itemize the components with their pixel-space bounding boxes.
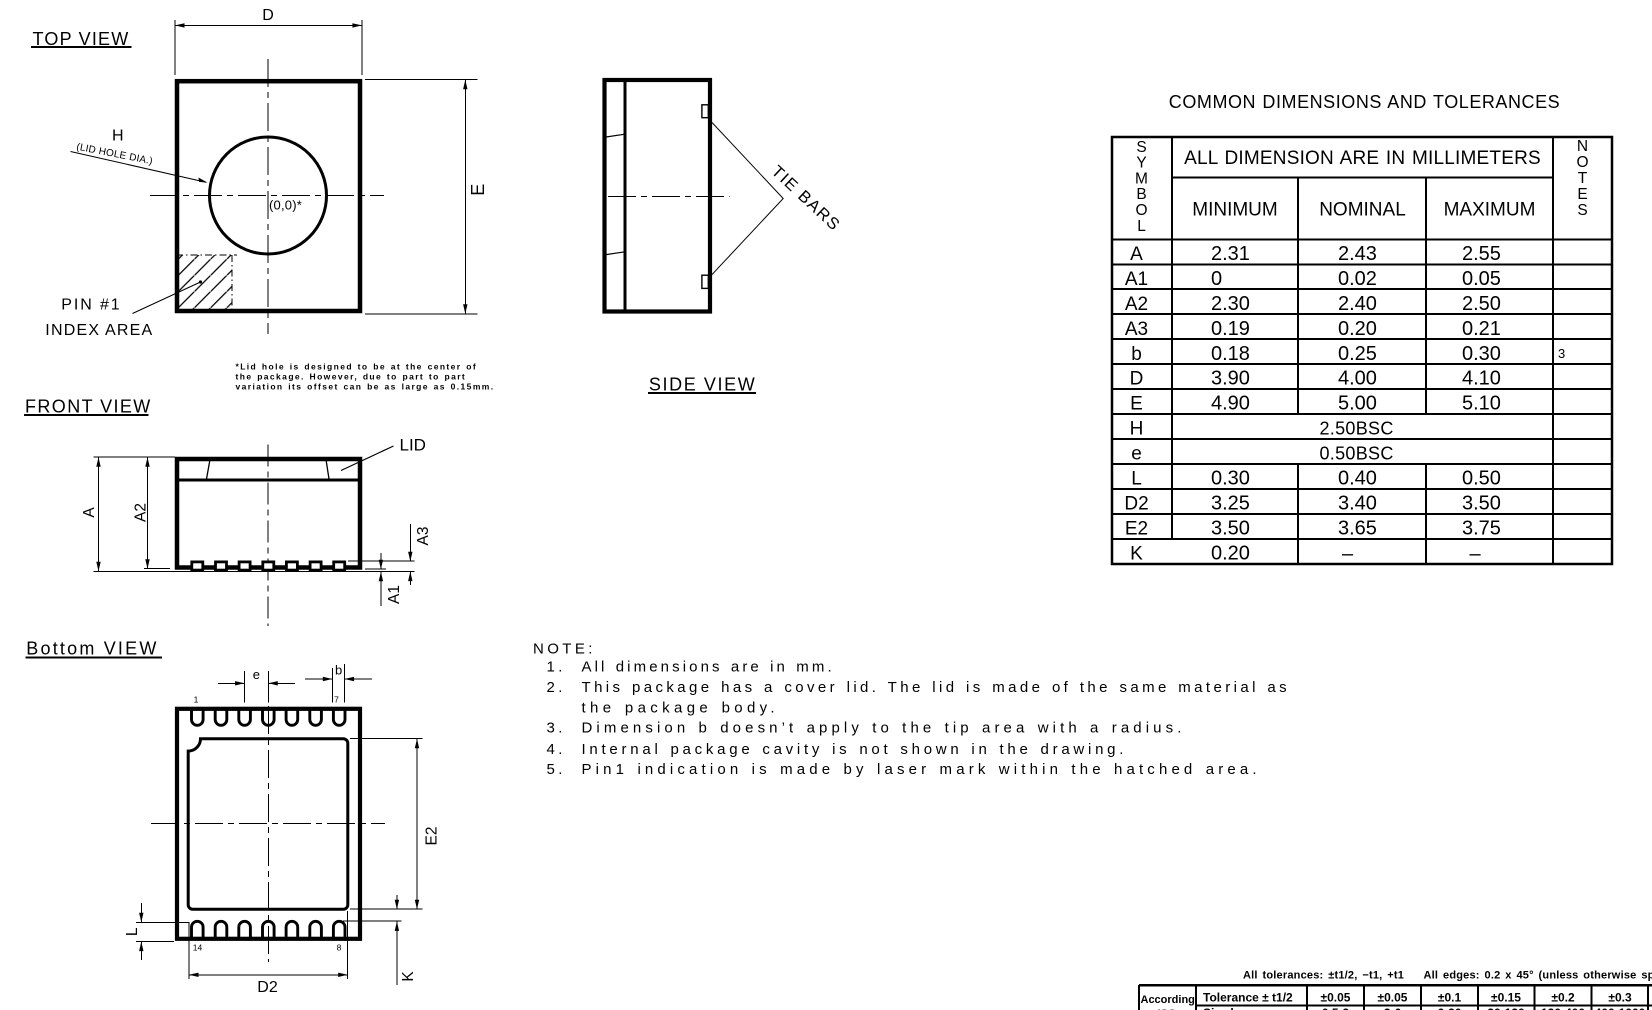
svg-text:A3: A3 xyxy=(1125,319,1148,340)
svg-text:30-120: 30-120 xyxy=(1487,1006,1525,1010)
svg-text:FRONT VIEW: FRONT VIEW xyxy=(25,397,152,417)
svg-text:4.10: 4.10 xyxy=(1462,368,1501,390)
svg-text:M: M xyxy=(1135,170,1148,187)
svg-text:E: E xyxy=(468,184,488,196)
svg-text:A: A xyxy=(1130,244,1143,265)
svg-text:L: L xyxy=(1137,218,1146,235)
svg-text:3.: 3. xyxy=(547,720,566,737)
svg-text:±0.3: ±0.3 xyxy=(1608,991,1632,1005)
svg-text:2.50: 2.50 xyxy=(1462,293,1501,315)
svg-text:TOP VIEW: TOP VIEW xyxy=(33,29,130,49)
svg-text:E2: E2 xyxy=(1125,519,1148,540)
svg-text:0.02: 0.02 xyxy=(1338,268,1377,290)
svg-text:8: 8 xyxy=(337,943,342,953)
svg-text:A1: A1 xyxy=(1125,269,1148,290)
svg-text:0.21: 0.21 xyxy=(1462,318,1501,340)
svg-text:According: According xyxy=(1141,994,1195,1006)
svg-text:A: A xyxy=(81,507,98,518)
svg-text:0.20: 0.20 xyxy=(1211,543,1250,565)
svg-text:3.75: 3.75 xyxy=(1462,518,1501,540)
svg-text:±0.15: ±0.15 xyxy=(1491,991,1521,1005)
svg-text:LID: LID xyxy=(400,436,426,455)
svg-text:120-400: 120-400 xyxy=(1541,1006,1585,1010)
svg-text:A2: A2 xyxy=(1125,294,1148,315)
svg-text:5.10: 5.10 xyxy=(1462,393,1501,415)
svg-text:(0,0)*: (0,0)* xyxy=(269,198,302,213)
svg-text:E: E xyxy=(1130,394,1143,415)
svg-text:*Lid hole is designed to be at: *Lid hole is designed to be at the cente… xyxy=(236,361,478,371)
svg-text:0.50BSC: 0.50BSC xyxy=(1320,444,1394,464)
svg-text:Size b: Size b xyxy=(1203,1006,1238,1010)
svg-text:e: e xyxy=(1131,444,1142,465)
svg-text:Bottom VIEW: Bottom VIEW xyxy=(26,639,158,659)
svg-text:4.00: 4.00 xyxy=(1338,368,1377,390)
svg-text:variation its offset can be as: variation its offset can be as large as … xyxy=(236,381,495,391)
svg-text:2.43: 2.43 xyxy=(1338,243,1377,265)
svg-text:K: K xyxy=(1130,544,1143,565)
svg-text:0.40: 0.40 xyxy=(1338,468,1377,490)
svg-text:PIN #1: PIN #1 xyxy=(61,297,121,314)
svg-text:Tolerance ± t1/2: Tolerance ± t1/2 xyxy=(1203,991,1293,1005)
svg-text:A1: A1 xyxy=(386,585,403,604)
svg-text:14: 14 xyxy=(193,943,203,953)
svg-text:ALL DIMENSION ARE IN MILLIMETE: ALL DIMENSION ARE IN MILLIMETERS xyxy=(1184,148,1541,169)
svg-text:400-1000: 400-1000 xyxy=(1595,1006,1646,1010)
svg-text:SIDE VIEW: SIDE VIEW xyxy=(649,375,756,395)
svg-text:5.00: 5.00 xyxy=(1338,393,1377,415)
svg-text:S: S xyxy=(1136,139,1146,156)
svg-text:3: 3 xyxy=(1558,346,1565,361)
svg-text:O: O xyxy=(1135,202,1147,219)
svg-text:2.40: 2.40 xyxy=(1338,293,1377,315)
svg-text:All dimensions are in mm.: All dimensions are in mm. xyxy=(582,658,835,675)
svg-text:0.18: 0.18 xyxy=(1211,343,1250,365)
svg-text:0.25: 0.25 xyxy=(1338,343,1377,365)
svg-text:All tolerances: ±t1/2, −t1, +t: All tolerances: ±t1/2, −t1, +t1 All edge… xyxy=(1243,970,1652,982)
svg-text:D2: D2 xyxy=(1124,494,1148,515)
svg-text:A2: A2 xyxy=(132,503,149,522)
svg-text:b: b xyxy=(1131,344,1142,365)
svg-text:3-6: 3-6 xyxy=(1384,1006,1402,1010)
svg-text:3.25: 3.25 xyxy=(1211,493,1250,515)
svg-text:COMMON DIMENSIONS AND TOLERANC: COMMON DIMENSIONS AND TOLERANCES xyxy=(1169,92,1560,112)
svg-text:0.05: 0.05 xyxy=(1462,268,1501,290)
svg-text:D2: D2 xyxy=(257,979,278,996)
svg-text:L: L xyxy=(1131,469,1142,490)
svg-text:4.: 4. xyxy=(547,741,566,758)
svg-text:1.: 1. xyxy=(547,658,566,675)
svg-text:0.19: 0.19 xyxy=(1211,318,1250,340)
svg-text:A3: A3 xyxy=(415,527,432,546)
svg-text:T: T xyxy=(1578,170,1588,187)
svg-text:the package. However, due to p: the package. However, due to part to par… xyxy=(236,371,467,381)
svg-text:3.90: 3.90 xyxy=(1211,368,1250,390)
svg-text:2.30: 2.30 xyxy=(1211,293,1250,315)
svg-text:S: S xyxy=(1577,202,1587,219)
svg-text:Dimension b doesn’t apply to t: Dimension b doesn’t apply to the tip are… xyxy=(582,720,1186,737)
svg-text:E: E xyxy=(1577,186,1587,203)
svg-text:3.40: 3.40 xyxy=(1338,493,1377,515)
svg-text:2.50BSC: 2.50BSC xyxy=(1320,419,1394,439)
svg-text:0.50: 0.50 xyxy=(1462,468,1501,490)
svg-text:±0.05: ±0.05 xyxy=(1378,991,1408,1005)
svg-text:E2: E2 xyxy=(423,827,440,846)
svg-text:3.50: 3.50 xyxy=(1462,493,1501,515)
svg-text:B: B xyxy=(1136,186,1146,203)
svg-text:0.30: 0.30 xyxy=(1211,468,1250,490)
svg-text:INDEX AREA: INDEX AREA xyxy=(45,322,153,339)
svg-text:H: H xyxy=(112,128,124,145)
svg-text:0.5-3: 0.5-3 xyxy=(1322,1006,1350,1010)
svg-text:0.20: 0.20 xyxy=(1338,318,1377,340)
svg-text:±0.05: ±0.05 xyxy=(1321,991,1351,1005)
svg-text:3.65: 3.65 xyxy=(1338,518,1377,540)
svg-text:H: H xyxy=(1130,419,1144,440)
svg-text:1: 1 xyxy=(194,695,199,705)
svg-text:2.: 2. xyxy=(547,679,566,696)
svg-text:±0.1: ±0.1 xyxy=(1438,991,1462,1005)
svg-text:Pin1 indication is made by las: Pin1 indication is made by laser mark wi… xyxy=(582,761,1261,778)
svg-text:NOMINAL: NOMINAL xyxy=(1319,200,1406,221)
svg-text:–: – xyxy=(1342,543,1354,565)
svg-text:e: e xyxy=(253,667,260,682)
svg-text:3.50: 3.50 xyxy=(1211,518,1250,540)
svg-text:D: D xyxy=(262,7,274,24)
svg-text:±0.2: ±0.2 xyxy=(1551,991,1575,1005)
svg-text:O: O xyxy=(1576,154,1588,171)
svg-text:NOTE:: NOTE: xyxy=(533,641,596,658)
svg-text:0.30: 0.30 xyxy=(1462,343,1501,365)
svg-text:6-30: 6-30 xyxy=(1437,1006,1461,1010)
svg-text:D: D xyxy=(1130,369,1144,390)
svg-text:4.90: 4.90 xyxy=(1211,393,1250,415)
svg-text:Internal package cavity is not: Internal package cavity is not shown in … xyxy=(582,741,1128,758)
svg-text:Y: Y xyxy=(1136,155,1146,172)
svg-text:0: 0 xyxy=(1211,268,1222,290)
svg-text:N: N xyxy=(1577,138,1588,155)
svg-text:MINIMUM: MINIMUM xyxy=(1192,200,1277,221)
svg-text:–: – xyxy=(1469,543,1481,565)
svg-text:b: b xyxy=(335,663,342,678)
svg-text:K: K xyxy=(400,971,417,982)
svg-text:5.: 5. xyxy=(547,761,566,778)
svg-text:MAXIMUM: MAXIMUM xyxy=(1444,200,1536,221)
svg-text:2.55: 2.55 xyxy=(1462,243,1501,265)
svg-text:the package body.: the package body. xyxy=(582,699,779,716)
svg-text:L: L xyxy=(124,927,141,936)
svg-text:This package has a cover lid.: This package has a cover lid. The lid is… xyxy=(582,679,1291,696)
svg-text:2.31: 2.31 xyxy=(1211,243,1250,265)
svg-text:7: 7 xyxy=(334,695,339,705)
